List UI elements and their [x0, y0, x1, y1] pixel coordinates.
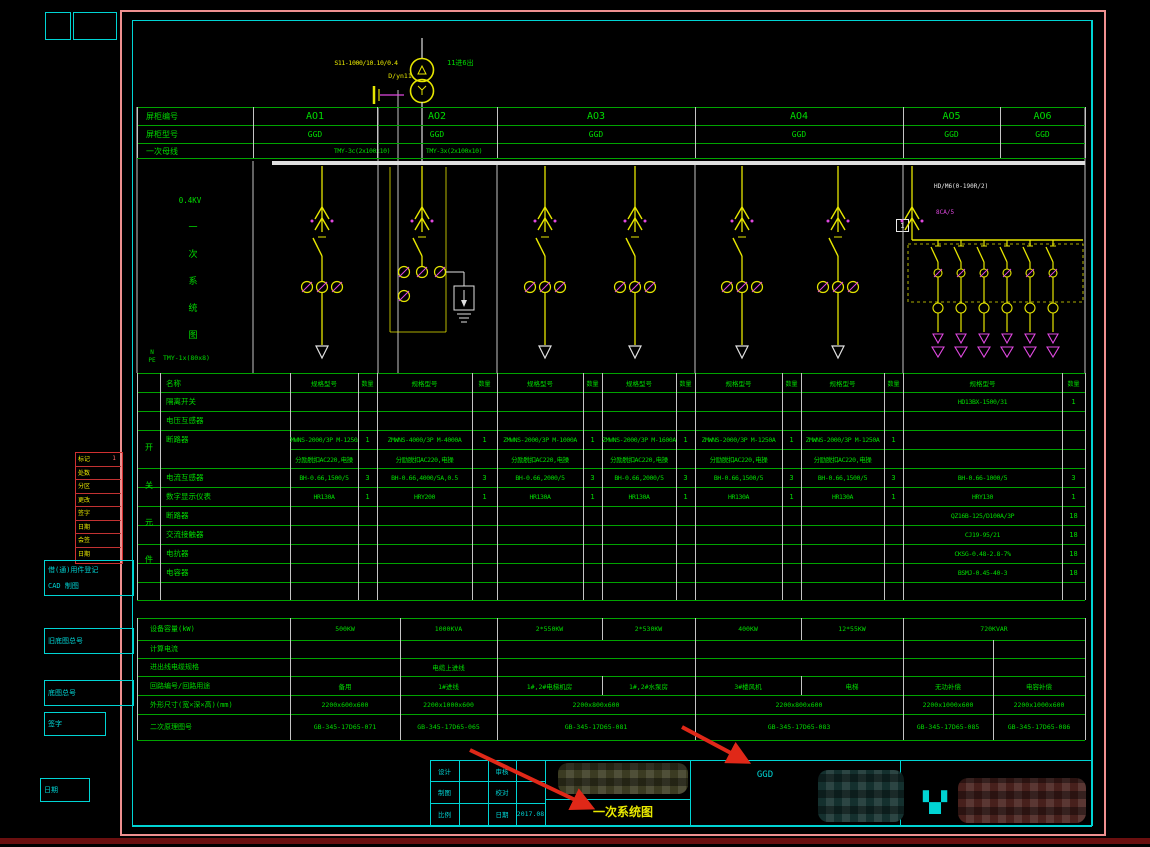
equip-row-label: 断路器 — [166, 506, 286, 525]
equip-vline — [1085, 373, 1086, 600]
equip-qty-cell: 18 — [1062, 525, 1085, 544]
bottom-strip — [0, 838, 1150, 844]
summary-cell: GB-345-17D65-086 — [993, 714, 1085, 740]
header-row2-label: 屏柜型号 — [146, 127, 246, 141]
summary-cell: 2200x600x600 — [290, 695, 400, 714]
equip-spec-cell: BH-0.66,2000/5 — [602, 468, 676, 487]
summary-row-label: 外形尺寸(宽×深×高)(mm) — [150, 695, 290, 714]
equip-qty-cell: 1 — [358, 487, 377, 506]
equip-qty-cell: 3 — [782, 468, 801, 487]
margin-box-1 — [45, 12, 71, 40]
summary-cell: GB-345-17D65-081 — [497, 714, 695, 740]
date-box: 日期 — [40, 778, 90, 802]
bus-label-left: TMY-3c(2x100x10) — [320, 145, 404, 156]
equip-spec-cell: HRY130 — [903, 487, 1062, 506]
vertical-title-char: 次 — [184, 246, 202, 260]
equip-group-char: 开 — [140, 440, 158, 454]
pe-label: PE — [144, 356, 160, 364]
vertical-title-char: 图 — [184, 327, 202, 341]
summary-cell: 2200x1000x600 — [903, 695, 993, 714]
equip-row-label: 电流互感器 — [166, 468, 286, 487]
spec-header: 规格型号 — [377, 376, 472, 390]
equip-row-label: 隔离开关 — [166, 392, 286, 411]
summary-cell: 备用 — [290, 676, 400, 695]
revision-value — [108, 521, 120, 532]
base-no-label: 底图总号 — [48, 685, 132, 700]
panel-type-label: GGD — [735, 768, 795, 782]
summary-row-label: 计算电流 — [150, 640, 290, 658]
n-label: N — [146, 348, 158, 356]
summary-cell: 电缆上进线 — [400, 658, 497, 676]
equip-spec-cell: ZMWNS-2000/3P M-1000A — [497, 430, 583, 449]
transformer-model-label: S11-1000/10.10/0.4 — [328, 58, 404, 68]
equip-qty-cell: 3 — [676, 468, 695, 487]
qty-header: 数量 — [583, 376, 602, 390]
summary-cell: GB-345-17D65-065 — [400, 714, 497, 740]
equip-spec-cell: HR130A — [497, 487, 583, 506]
equip-spec-cell: 分励脱扣AC220,电操 — [801, 449, 884, 468]
summary-cell: 2200x1000x600 — [400, 695, 497, 714]
header-hline — [137, 107, 1085, 108]
summary-cell: 2*530KW — [602, 618, 695, 640]
qty-header: 数量 — [472, 376, 497, 390]
equip-qty-cell: 1 — [1062, 392, 1085, 411]
equip-qty-cell: 18 — [1062, 563, 1085, 582]
spec-header: 规格型号 — [290, 376, 358, 390]
panel-type-AO1: GGD — [253, 127, 377, 141]
panel-id-AO4: AO4 — [695, 109, 903, 123]
equip-spec-cell: ZMWNS-4000/3P M-4000A — [377, 430, 472, 449]
spec-header: 规格型号 — [903, 376, 1062, 390]
header-vline — [1085, 107, 1086, 158]
equip-qty-cell: 18 — [1062, 544, 1085, 563]
equip-spec-cell: ZMWNS-2000/3P M-1250A — [290, 430, 358, 449]
usage-register-box: 借(通)用件登记 CAD 制图 — [44, 560, 134, 596]
equip-vline — [137, 373, 138, 600]
header-hline — [137, 143, 1085, 144]
equip-spec-cell: ZMWNS-2000/3P M-1600A — [602, 430, 676, 449]
equip-spec-cell: HR130A — [695, 487, 782, 506]
equip-row-label: 断路器 — [166, 430, 286, 449]
equip-row-label: 数字显示仪表 — [166, 487, 286, 506]
equip-spec-cell: HD13BX-1500/31 — [903, 392, 1062, 411]
equip-row-label: 电压互感器 — [166, 411, 286, 430]
equip-qty-cell: 1 — [1062, 487, 1085, 506]
title-mini-label: 制图 — [430, 781, 459, 803]
equip-spec-cell: CKSG-0.48-2.8-7% — [903, 544, 1062, 563]
equip-qty-cell: 1 — [472, 430, 497, 449]
spec-header: 规格型号 — [497, 376, 583, 390]
summary-cell: 720KVAR — [903, 618, 1085, 640]
header-row1-label: 屏柜编号 — [146, 109, 246, 123]
equip-qty-cell: 1 — [884, 430, 903, 449]
cad-drawn-label: CAD 制图 — [48, 578, 132, 593]
bus-label-right: TMY-3x(2x100x10) — [412, 145, 496, 156]
qty-header: 数量 — [676, 376, 695, 390]
summary-cell: 1#,2#电梯机房 — [497, 676, 602, 695]
equip-qty-cell: 1 — [583, 487, 602, 506]
summary-hline — [137, 740, 1085, 741]
signature-label: 签字 — [48, 716, 102, 731]
drawing-sheet: 借(通)用件登记 CAD 制图 旧底图总号 底图总号 签字 日期 S11-100… — [0, 0, 1150, 847]
equip-spec-cell: BH-0.66,4000/5A,0.5 — [377, 468, 472, 487]
equip-name-header: 名称 — [166, 376, 266, 390]
equip-spec-cell: ZMWNS-2000/3P M-1250A — [801, 430, 884, 449]
equip-row-label: 电抗器 — [166, 544, 286, 563]
equip-qty-cell: 1 — [472, 487, 497, 506]
date-margin-label: 日期 — [44, 782, 86, 797]
equip-hline — [137, 600, 1085, 601]
summary-cell: 1#,2#水泵房 — [602, 676, 695, 695]
voltage-label: 0.4KV — [170, 195, 210, 206]
equip-spec-cell: HRY200 — [377, 487, 472, 506]
vertical-title-char: 统 — [184, 300, 202, 314]
cap-ct-label: 8CA/5 — [936, 208, 986, 217]
revision-label: 会签 — [78, 534, 108, 545]
revision-value — [108, 507, 120, 518]
summary-cell: 1#进线 — [400, 676, 497, 695]
summary-cell: 2200x800x600 — [695, 695, 903, 714]
cap-model-label: HD/M6(0-190R/2) — [934, 182, 1024, 191]
panel-id-AO5: AO5 — [903, 109, 1000, 123]
equip-spec-cell: QZ16B-125/D100A/3P — [903, 506, 1062, 525]
equip-qty-cell: 3 — [472, 468, 497, 487]
vertical-title-char: 一 — [184, 219, 202, 233]
summary-vline — [1085, 618, 1086, 740]
equip-row-label: 电容器 — [166, 563, 286, 582]
equip-spec-cell: 分励脱扣AC220,电操 — [290, 449, 358, 468]
equip-spec-cell: BH-0.66,1500/5 — [695, 468, 782, 487]
equip-hline — [137, 373, 1085, 374]
summary-cell: 电容补偿 — [993, 676, 1085, 695]
summary-cell: 400KW — [695, 618, 801, 640]
title-grid-vline — [459, 760, 460, 825]
spec-header: 规格型号 — [695, 376, 782, 390]
frame-top — [132, 20, 1092, 21]
company-logo-icon: ▚▞ — [916, 786, 954, 818]
summary-cell: 无功补偿 — [903, 676, 993, 695]
equip-hline — [137, 582, 1085, 583]
equip-spec-cell: BSMJ-0.45-40-3 — [903, 563, 1062, 582]
base-no-box: 底图总号 — [44, 680, 134, 706]
header-row3-label: 一次母线 — [146, 145, 246, 157]
summary-row-label: 进出线电缆规格 — [150, 658, 290, 676]
equip-spec-cell: 分励脱扣AC220,电操 — [602, 449, 676, 468]
margin-box-2 — [73, 12, 117, 40]
censored-stamp-2 — [818, 770, 904, 822]
panel-type-AO5: GGD — [903, 127, 1000, 141]
transformer-note: 11进6出 — [447, 58, 497, 68]
summary-row-label: 设备容量(kW) — [150, 618, 290, 640]
equip-spec-cell: BH-0.66,1500/5 — [801, 468, 884, 487]
summary-cell: GB-345-17D65-085 — [903, 714, 993, 740]
header-vline — [137, 107, 138, 158]
old-base-no-box: 旧底图总号 — [44, 628, 134, 654]
qty-header: 数量 — [884, 376, 903, 390]
revision-value — [108, 494, 120, 505]
revision-value: 1 — [108, 453, 120, 464]
panel-id-AO2: AO2 — [377, 109, 497, 123]
equip-spec-cell: 分励脱扣AC220,电操 — [695, 449, 782, 468]
summary-row-label: 回路编号/回路用途 — [150, 676, 290, 695]
equip-spec-cell: HR130A — [290, 487, 358, 506]
summary-cell: GB-345-17D65-071 — [290, 714, 400, 740]
cap-box-number: 1 — [896, 219, 909, 232]
equip-spec-cell: HR130A — [801, 487, 884, 506]
equip-group-char: 件 — [140, 552, 158, 566]
equip-spec-cell: BH-0.66,1500/5 — [290, 468, 358, 487]
equip-qty-cell: 1 — [358, 430, 377, 449]
equip-qty-cell: 1 — [676, 487, 695, 506]
summary-cell: 1000KVA — [400, 618, 497, 640]
revision-label: 日期 — [78, 548, 108, 559]
revision-value — [108, 548, 120, 559]
summary-cell: 12*55KW — [801, 618, 903, 640]
transformer-vector-group-label: D/yn11 — [382, 71, 418, 81]
equip-qty-cell: 1 — [583, 430, 602, 449]
header-hline — [137, 125, 1085, 126]
equip-qty-cell: 3 — [358, 468, 377, 487]
qty-header: 数量 — [1062, 376, 1085, 390]
censored-stamp-3 — [958, 778, 1086, 823]
title-mini-label: 设计 — [430, 760, 459, 781]
panel-type-AO2: GGD — [377, 127, 497, 141]
equip-group-char: 关 — [140, 478, 158, 492]
panel-id-AO1: AO1 — [253, 109, 377, 123]
qty-header: 数量 — [358, 376, 377, 390]
summary-cell: 500KW — [290, 618, 400, 640]
censored-stamp-1 — [558, 763, 688, 794]
summary-vline — [137, 618, 138, 740]
revision-label: 日期 — [78, 521, 108, 532]
summary-cell: 3#楼风机 — [695, 676, 801, 695]
panel-type-AO3: GGD — [497, 127, 695, 141]
equip-qty-cell: 3 — [1062, 468, 1085, 487]
revision-value — [108, 534, 120, 545]
spec-header: 规格型号 — [602, 376, 676, 390]
revision-label: 签字 — [78, 507, 108, 518]
equip-vline — [160, 373, 161, 600]
equip-qty-cell: 1 — [676, 430, 695, 449]
usage-register-label: 借(通)用件登记 — [48, 562, 132, 577]
signature-box: 签字 — [44, 712, 106, 736]
equip-spec-cell: 分励脱扣AC220,电操 — [497, 449, 583, 468]
summary-cell: 电梯 — [801, 676, 903, 695]
equip-spec-cell: BH-0.66,2000/5 — [497, 468, 583, 487]
title-mini-label: 比例 — [430, 803, 459, 825]
revision-label: 更改 — [78, 494, 108, 505]
panel-type-AO4: GGD — [695, 127, 903, 141]
summary-cell: GB-345-17D65-083 — [695, 714, 903, 740]
equip-spec-cell: BH-0.66-1000/5 — [903, 468, 1062, 487]
panel-id-AO3: AO3 — [497, 109, 695, 123]
panel-type-AO6: GGD — [1000, 127, 1085, 141]
frame-bottom — [132, 825, 1092, 827]
qty-header: 数量 — [782, 376, 801, 390]
old-base-no-label: 旧底图总号 — [48, 633, 132, 648]
equip-spec-cell: ZMWNS-2000/3P M-1250A — [695, 430, 782, 449]
equip-spec-cell: 分励脱扣AC220,电操 — [377, 449, 472, 468]
equip-qty-cell: 18 — [1062, 506, 1085, 525]
equip-group-char: 元 — [140, 515, 158, 529]
equip-qty-cell: 3 — [884, 468, 903, 487]
summary-cell: 2*550KW — [497, 618, 602, 640]
title-mini-label: 校对 — [488, 781, 516, 803]
summary-cell: 2200x800x600 — [497, 695, 695, 714]
title-mini-value: 2017.08 — [516, 803, 545, 825]
revision-label: 分区 — [78, 480, 108, 491]
equip-row-label: 交流接触器 — [166, 525, 286, 544]
revision-value — [108, 480, 120, 491]
equip-spec-cell: CJ19-95/21 — [903, 525, 1062, 544]
summary-row-label: 二次原理图号 — [150, 714, 290, 740]
frame-right — [1091, 20, 1093, 826]
title-mini-label: 日期 — [488, 803, 516, 825]
equip-qty-cell: 3 — [583, 468, 602, 487]
panel-id-AO6: AO6 — [1000, 109, 1085, 123]
revision-label: 标记 — [78, 453, 108, 464]
header-hline — [137, 158, 1085, 159]
revision-value — [108, 467, 120, 478]
title-mini-label: 审核 — [488, 760, 516, 781]
npe-bus-label: TMY-1x(80x8) — [163, 353, 243, 363]
equip-spec-cell: HR130A — [602, 487, 676, 506]
spec-header: 规格型号 — [801, 376, 884, 390]
vertical-title-char: 系 — [184, 273, 202, 287]
equip-qty-cell: 1 — [884, 487, 903, 506]
summary-cell: 2200x1000x600 — [993, 695, 1085, 714]
equip-qty-cell: 1 — [782, 487, 801, 506]
revision-label: 处数 — [78, 467, 108, 478]
drawing-name: 一次系统图 — [558, 801, 688, 821]
equip-qty-cell: 1 — [782, 430, 801, 449]
